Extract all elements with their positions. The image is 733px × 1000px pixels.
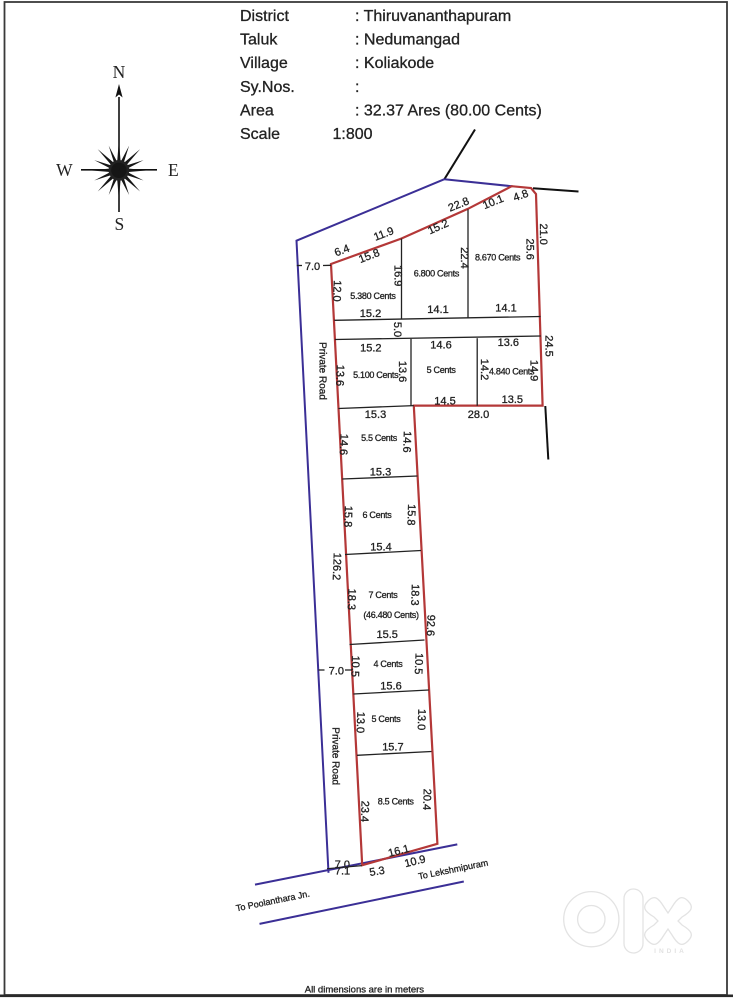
svg-text:28.0: 28.0 xyxy=(468,409,489,421)
svg-text:E: E xyxy=(168,160,179,180)
svg-text:13.0: 13.0 xyxy=(415,709,428,731)
svg-text:W: W xyxy=(56,160,73,180)
svg-text:N: N xyxy=(113,62,126,82)
svg-text:14.6: 14.6 xyxy=(400,431,413,453)
svg-text:13.0: 13.0 xyxy=(354,712,367,734)
svg-text:5.0: 5.0 xyxy=(391,322,403,337)
svg-text:21.0: 21.0 xyxy=(537,223,549,244)
svg-text:7.0: 7.0 xyxy=(305,261,320,273)
svg-text:7 Cents: 7 Cents xyxy=(369,590,399,600)
svg-text:1:800: 1:800 xyxy=(333,126,373,143)
svg-text:15.2: 15.2 xyxy=(360,308,381,320)
svg-text:4 Cents: 4 Cents xyxy=(374,659,404,669)
svg-text:8.670 Cents: 8.670 Cents xyxy=(475,253,521,263)
svg-text:5.100 Cents: 5.100 Cents xyxy=(353,370,399,380)
svg-text:15.5: 15.5 xyxy=(376,629,397,641)
svg-text:15.2: 15.2 xyxy=(360,343,381,355)
svg-text:13.5: 13.5 xyxy=(502,394,523,406)
svg-text:6 Cents: 6 Cents xyxy=(363,510,393,520)
svg-text:13.6: 13.6 xyxy=(498,337,519,349)
svg-text:10.5: 10.5 xyxy=(412,653,425,675)
svg-text:5 Cents: 5 Cents xyxy=(427,365,457,375)
svg-text:15.3: 15.3 xyxy=(365,409,386,421)
svg-text:: Koliakode: : Koliakode xyxy=(355,55,434,72)
svg-text:10.5: 10.5 xyxy=(348,655,361,677)
svg-text:Village: Village xyxy=(240,55,288,72)
svg-text:126.2: 126.2 xyxy=(330,553,343,581)
svg-text:15.8: 15.8 xyxy=(404,504,417,526)
svg-text:15.3: 15.3 xyxy=(370,467,391,479)
svg-text:5.5 Cents: 5.5 Cents xyxy=(361,433,398,443)
svg-text:5 Cents: 5 Cents xyxy=(372,714,402,724)
svg-text:18.3: 18.3 xyxy=(345,588,358,610)
svg-text:22.4: 22.4 xyxy=(458,247,470,268)
svg-text:Sy.Nos.: Sy.Nos. xyxy=(240,79,295,96)
svg-text:5.380 Cents: 5.380 Cents xyxy=(350,291,396,301)
svg-text:8.5 Cents: 8.5 Cents xyxy=(378,797,415,807)
svg-text:Private Road: Private Road xyxy=(317,342,328,400)
svg-text:5.3: 5.3 xyxy=(369,865,386,879)
svg-text:Private Road: Private Road xyxy=(329,727,340,785)
svg-text:14.6: 14.6 xyxy=(430,340,451,352)
svg-text:14.1: 14.1 xyxy=(495,303,516,315)
svg-text:6.800 Cents: 6.800 Cents xyxy=(414,269,460,279)
svg-text:92.6: 92.6 xyxy=(424,615,437,637)
svg-text:15.4: 15.4 xyxy=(370,542,391,554)
svg-text:23.4: 23.4 xyxy=(358,801,371,823)
svg-text:Scale: Scale xyxy=(240,126,280,143)
svg-text:16.9: 16.9 xyxy=(392,265,404,286)
svg-text:13.6: 13.6 xyxy=(333,365,346,387)
svg-text:20.4: 20.4 xyxy=(420,789,433,811)
svg-text:24.5: 24.5 xyxy=(542,335,554,356)
svg-text:14.1: 14.1 xyxy=(427,304,448,316)
svg-text:4.840 Cents: 4.840 Cents xyxy=(489,367,535,377)
svg-text:25.6: 25.6 xyxy=(523,238,535,259)
svg-text:Taluk: Taluk xyxy=(240,32,278,49)
svg-text:15.8: 15.8 xyxy=(341,506,354,528)
svg-text:(46.480 Cents): (46.480 Cents) xyxy=(363,610,419,620)
svg-text:S: S xyxy=(115,214,125,234)
svg-text:14.6: 14.6 xyxy=(337,434,350,456)
svg-text:15.7: 15.7 xyxy=(382,742,403,754)
svg-text:14.5: 14.5 xyxy=(434,395,455,407)
svg-text:: 32.37 Ares (80.00 Cents): : 32.37 Ares (80.00 Cents) xyxy=(355,102,542,119)
svg-text:District: District xyxy=(240,8,289,25)
svg-text:All dimensions are in meters: All dimensions are in meters xyxy=(305,985,425,996)
svg-text:: Nedumangad: : Nedumangad xyxy=(355,32,460,49)
svg-text:: Thiruvananthapuram: : Thiruvananthapuram xyxy=(355,8,511,25)
svg-text::: : xyxy=(355,79,359,96)
svg-text:7.0: 7.0 xyxy=(329,666,344,678)
svg-text:INDIA: INDIA xyxy=(654,948,687,955)
svg-text:12.0: 12.0 xyxy=(330,280,343,302)
svg-text:15.6: 15.6 xyxy=(380,680,401,692)
svg-text:18.3: 18.3 xyxy=(408,584,421,606)
svg-text:Area: Area xyxy=(240,102,274,119)
